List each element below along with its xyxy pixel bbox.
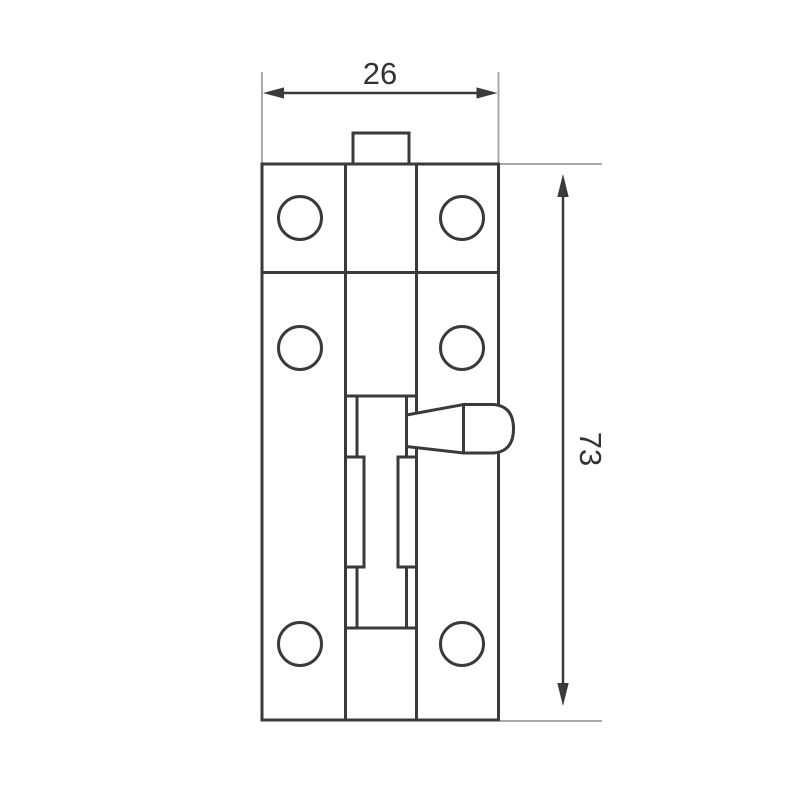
left-guide-strap — [346, 457, 365, 567]
width-dimension-label: 26 — [363, 56, 397, 91]
screw-hole-bottom-left — [279, 623, 322, 666]
height-arrow-down-icon — [557, 683, 568, 706]
drawing-stage: 26 73 — [0, 0, 804, 804]
screw-hole-middle-left — [279, 327, 322, 370]
bolt-latch-technical-drawing: 26 73 — [0, 0, 804, 804]
screw-hole-middle-right — [441, 327, 484, 370]
screw-hole-top-left — [279, 197, 322, 240]
screw-hole-top-right — [441, 197, 484, 240]
width-arrow-left-icon — [263, 87, 284, 98]
extension-lines-group — [262, 72, 602, 721]
bolt-tip-tab — [353, 133, 409, 164]
screw-hole-bottom-right — [441, 623, 484, 666]
knob-cap — [464, 405, 514, 454]
height-dimension-label: 73 — [573, 432, 608, 466]
right-guide-strap — [398, 457, 417, 567]
width-arrow-right-icon — [477, 87, 498, 98]
height-arrow-up-icon — [557, 174, 568, 197]
bolt-body-group — [262, 133, 514, 720]
dimension-lines-group — [283, 93, 563, 684]
